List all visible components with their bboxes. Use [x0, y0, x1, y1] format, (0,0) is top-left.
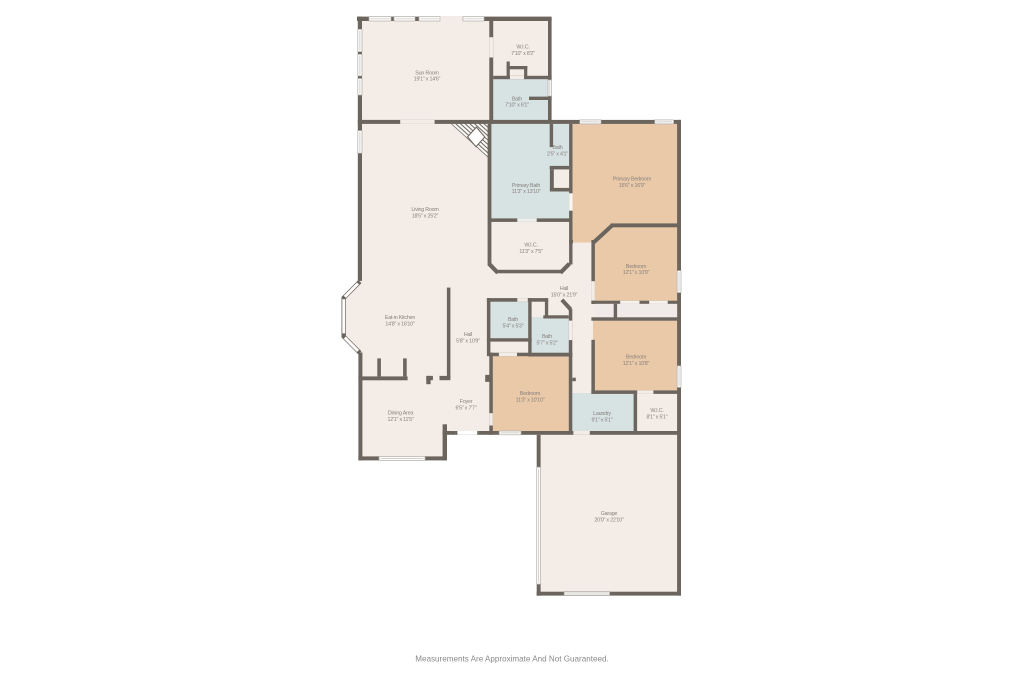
svg-text:20'0" x 22'10": 20'0" x 22'10": [594, 517, 624, 523]
svg-text:Bath: Bath: [552, 145, 562, 151]
svg-text:11'3" x 10'10": 11'3" x 10'10": [516, 397, 545, 403]
svg-text:18'5" x 25'2": 18'5" x 25'2": [412, 213, 439, 219]
svg-text:W.I.C.: W.I.C.: [524, 243, 537, 249]
svg-text:5'4" x 5'3": 5'4" x 5'3": [503, 323, 524, 329]
svg-text:9'1" x 5'1": 9'1" x 5'1": [592, 417, 613, 423]
svg-text:19'1" x 14'6": 19'1" x 14'6": [414, 77, 441, 83]
svg-text:Hall: Hall: [560, 286, 568, 292]
svg-text:Foyer: Foyer: [460, 399, 473, 405]
svg-text:7'10" x 8'2": 7'10" x 8'2": [511, 51, 535, 57]
svg-text:W.I.C.: W.I.C.: [516, 45, 529, 51]
svg-text:2'5" x 4'1": 2'5" x 4'1": [547, 151, 568, 157]
svg-text:12'1" x 10'9": 12'1" x 10'9": [623, 270, 650, 276]
svg-text:12'1" x 10'8": 12'1" x 10'8": [623, 361, 650, 367]
svg-text:15'0" x 21'9": 15'0" x 21'9": [551, 292, 578, 298]
svg-text:Sun Room: Sun Room: [415, 71, 439, 77]
svg-text:Laundry: Laundry: [593, 411, 611, 417]
svg-text:Garage: Garage: [601, 511, 618, 517]
svg-text:11'3" x 7'5": 11'3" x 7'5": [519, 249, 543, 255]
svg-text:11'3" x 13'10": 11'3" x 13'10": [512, 189, 541, 195]
svg-text:Hall: Hall: [464, 332, 472, 338]
svg-text:Bedroom: Bedroom: [626, 264, 647, 270]
svg-text:Bath: Bath: [508, 317, 518, 323]
svg-text:Primary Bath: Primary Bath: [512, 183, 540, 189]
svg-text:Bath: Bath: [512, 96, 522, 102]
svg-text:Bath: Bath: [542, 334, 552, 340]
svg-text:6'5" x 7'7": 6'5" x 7'7": [456, 405, 477, 411]
svg-text:Measurements Are Approximate A: Measurements Are Approximate And Not Gua…: [415, 655, 608, 664]
svg-text:7'10" x 6'1": 7'10" x 6'1": [505, 103, 529, 109]
svg-text:Bedroom: Bedroom: [520, 391, 541, 397]
svg-text:Dining Area: Dining Area: [388, 411, 413, 417]
svg-text:8'1" x 5'1": 8'1" x 5'1": [647, 414, 668, 420]
svg-text:14'8" x 16'10": 14'8" x 16'10": [385, 321, 415, 327]
svg-text:5'8" x 10'9": 5'8" x 10'9": [456, 338, 480, 344]
svg-text:5'7" x 5'2": 5'7" x 5'2": [537, 340, 558, 346]
svg-text:Eat-in Kitchen: Eat-in Kitchen: [385, 315, 415, 321]
svg-text:Bedroom: Bedroom: [626, 355, 647, 361]
svg-text:12'1" x 11'5": 12'1" x 11'5": [387, 417, 413, 423]
svg-text:W.I.C.: W.I.C.: [650, 408, 663, 414]
svg-text:Living Room: Living Room: [411, 207, 439, 213]
svg-text:15'6" x 16'9": 15'6" x 16'9": [619, 183, 646, 189]
svg-text:Primary Bedroom: Primary Bedroom: [613, 177, 652, 183]
